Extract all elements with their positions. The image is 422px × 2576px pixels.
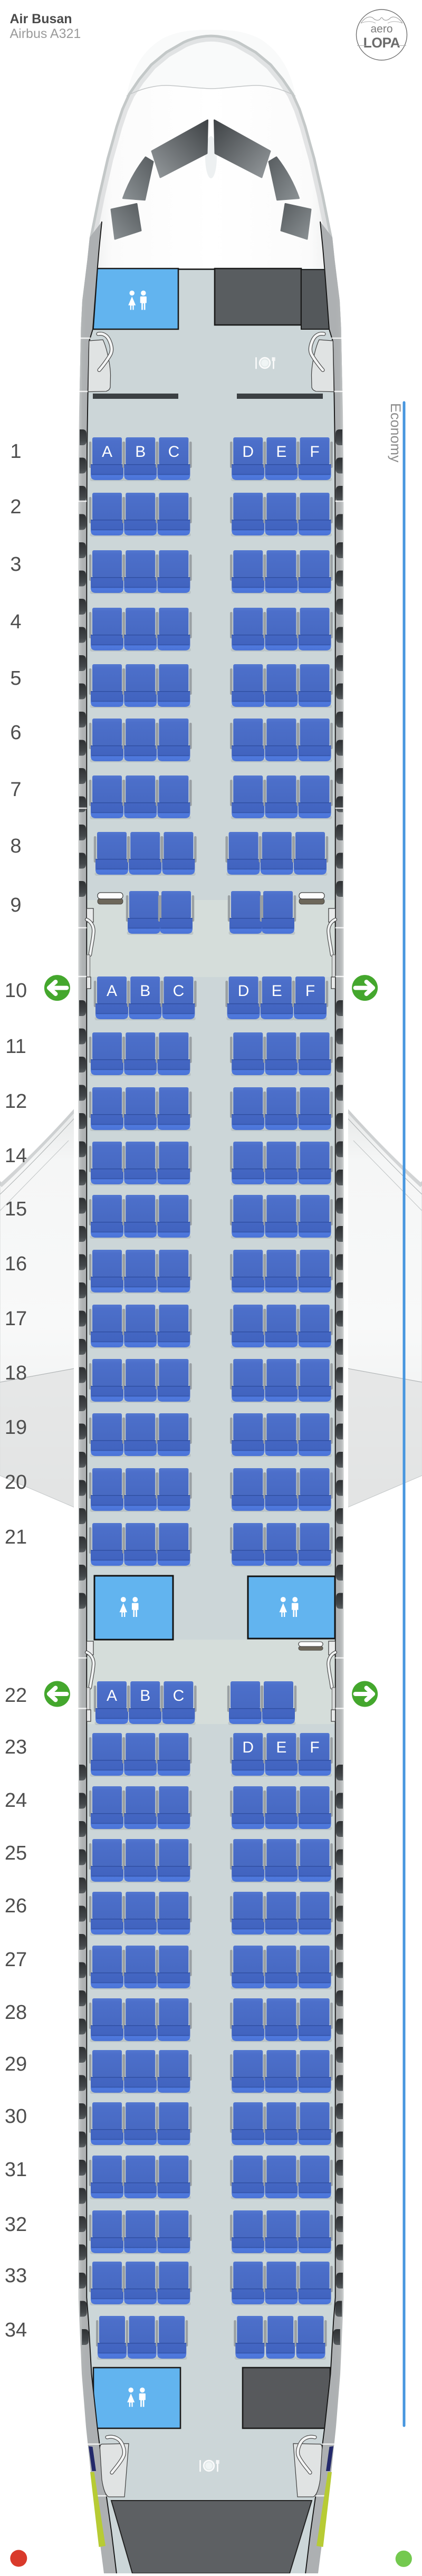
svg-text:D: D xyxy=(238,982,250,1000)
svg-text:8: 8 xyxy=(10,835,21,857)
svg-text:E: E xyxy=(276,443,286,461)
svg-text:7: 7 xyxy=(10,779,21,801)
svg-text:aero: aero xyxy=(370,23,392,35)
svg-text:E: E xyxy=(272,982,282,1000)
svg-text:24: 24 xyxy=(5,1789,27,1812)
svg-text:33: 33 xyxy=(5,2265,27,2287)
svg-text:15: 15 xyxy=(5,1198,27,1220)
svg-text:28: 28 xyxy=(5,2002,27,2024)
svg-text:11: 11 xyxy=(5,1036,26,1058)
svg-text:3: 3 xyxy=(10,553,21,576)
svg-text:32: 32 xyxy=(5,2214,27,2236)
svg-text:34: 34 xyxy=(5,2319,27,2341)
svg-text:26: 26 xyxy=(5,1895,27,1917)
svg-text:A: A xyxy=(107,982,117,1000)
svg-text:F: F xyxy=(305,982,315,1000)
svg-text:D: D xyxy=(242,443,254,461)
svg-text:25: 25 xyxy=(5,1842,27,1864)
svg-text:27: 27 xyxy=(5,1949,27,1971)
svg-text:20: 20 xyxy=(5,1471,27,1493)
svg-text:6: 6 xyxy=(10,722,21,744)
svg-text:C: C xyxy=(168,443,180,461)
svg-text:D: D xyxy=(242,1739,254,1756)
svg-text:Economy: Economy xyxy=(388,403,404,463)
svg-text:23: 23 xyxy=(5,1736,27,1758)
svg-text:2: 2 xyxy=(10,496,21,518)
svg-text:B: B xyxy=(140,1687,150,1704)
svg-text:9: 9 xyxy=(10,894,21,916)
svg-text:17: 17 xyxy=(5,1308,27,1330)
svg-text:Air Busan: Air Busan xyxy=(10,12,72,26)
svg-text:30: 30 xyxy=(5,2105,27,2128)
svg-text:12: 12 xyxy=(5,1090,27,1113)
svg-text:22: 22 xyxy=(5,1684,27,1707)
svg-text:14: 14 xyxy=(5,1145,27,1167)
svg-text:18: 18 xyxy=(5,1362,27,1384)
svg-text:A: A xyxy=(102,443,112,461)
svg-text:E: E xyxy=(276,1739,286,1756)
svg-text:A: A xyxy=(107,1687,117,1704)
svg-text:1: 1 xyxy=(10,440,21,463)
svg-text:Airbus A321: Airbus A321 xyxy=(10,26,81,41)
svg-text:F: F xyxy=(310,443,319,461)
svg-text:F: F xyxy=(310,1739,319,1756)
svg-text:B: B xyxy=(140,982,150,1000)
svg-text:19: 19 xyxy=(5,1416,27,1439)
svg-text:21: 21 xyxy=(5,1526,27,1548)
svg-text:C: C xyxy=(173,982,185,1000)
svg-text:10: 10 xyxy=(5,980,27,1002)
svg-text:LOPA: LOPA xyxy=(363,35,400,51)
svg-text:5: 5 xyxy=(10,667,21,690)
svg-text:B: B xyxy=(135,443,146,461)
svg-text:31: 31 xyxy=(5,2159,27,2181)
svg-text:4: 4 xyxy=(10,611,21,633)
svg-text:29: 29 xyxy=(5,2053,27,2075)
svg-text:C: C xyxy=(173,1687,185,1704)
svg-text:16: 16 xyxy=(5,1253,27,1275)
